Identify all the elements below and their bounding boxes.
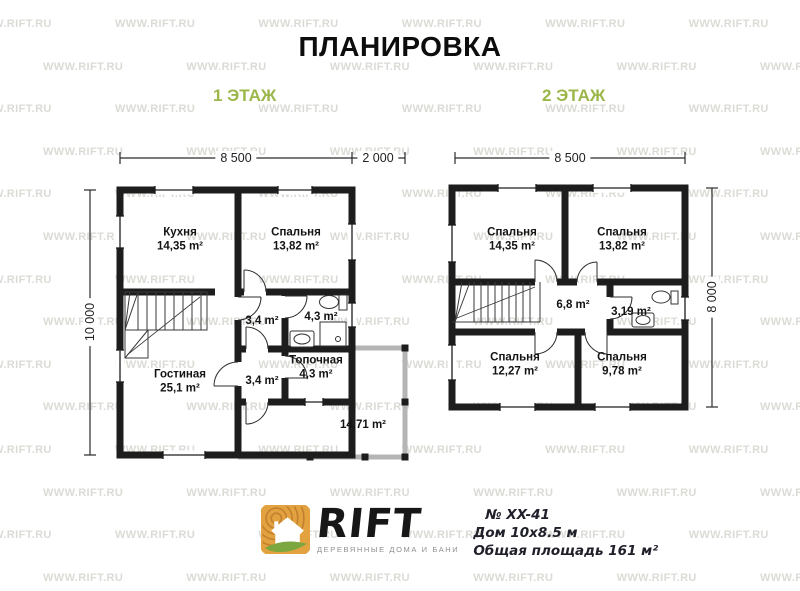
- watermark-text: WWW.RIFT.RU: [330, 572, 410, 584]
- watermark-text: WWW.RIFT.RU: [473, 572, 553, 584]
- stairs-icon: [125, 292, 207, 358]
- footer: RIFT ДЕРЕВЯННЫЕ ДОМА И БАНИ № XX-41 Дом …: [261, 505, 658, 560]
- watermark-text: WWW.RIFT.RU: [545, 18, 625, 30]
- room-label-hall-lower: 3,4 m²: [245, 374, 278, 388]
- watermark-text: WWW.RIFT.RU: [115, 103, 195, 115]
- room-label-bedroom-f1: Спальня13,82 m²: [271, 226, 321, 255]
- watermark-text: WWW.RIFT.RU: [115, 18, 195, 30]
- room-label-hall-f2: 6,8 m²: [556, 298, 589, 312]
- room-label-boiler: Топочная4,3 m²: [289, 354, 343, 383]
- floor1-dim-height: 10 000: [83, 298, 97, 346]
- watermark-text: WWW.RIFT.RU: [760, 316, 800, 328]
- watermark-text: WWW.RIFT.RU: [760, 146, 800, 158]
- floor2-dim-width: 8 500: [549, 151, 590, 165]
- room-label-bedroom1: Спальня14,35 m²: [487, 226, 537, 255]
- floor2-label: 2 ЭТАЖ: [542, 86, 605, 106]
- watermark-text: WWW.RIFT.RU: [43, 572, 123, 584]
- room-label-bedroom4: Спальня9,78 m²: [597, 351, 647, 380]
- room-label-kitchen: Кухня14,35 m²: [157, 226, 203, 255]
- watermark-text: WWW.RIFT.RU: [186, 487, 266, 499]
- watermark-text: WWW.RIFT.RU: [689, 18, 769, 30]
- floor2-plan: 8 500 8 000 Спальня14,35 m² Спальня13,82…: [440, 145, 752, 470]
- rift-logo-icon: [261, 505, 310, 554]
- floor1-plan: 8 500 2 000 10 000 Кухня14,35 m² Спальня…: [80, 145, 415, 470]
- watermark-text: WWW.RIFT.RU: [0, 18, 52, 30]
- project-info: № XX-41 Дом 10х8.5 м Общая площадь 161 м…: [473, 505, 658, 560]
- room-label-living: Гостиная25,1 m²: [154, 368, 206, 397]
- watermark-text: WWW.RIFT.RU: [258, 18, 338, 30]
- watermark-text: WWW.RIFT.RU: [760, 231, 800, 243]
- watermark-text: WWW.RIFT.RU: [689, 103, 769, 115]
- project-number: № XX-41: [473, 506, 658, 524]
- watermark-text: WWW.RIFT.RU: [0, 188, 52, 200]
- watermark-text: WWW.RIFT.RU: [617, 487, 697, 499]
- stairs-icon-f2: [452, 282, 540, 322]
- watermark-text: WWW.RIFT.RU: [0, 444, 52, 456]
- watermark-text: WWW.RIFT.RU: [0, 359, 52, 371]
- watermark-text: WWW.RIFT.RU: [473, 487, 553, 499]
- watermark-text: WWW.RIFT.RU: [617, 572, 697, 584]
- room-label-bedroom2: Спальня13,82 m²: [597, 226, 647, 255]
- room-label-terrace: 14,71 m²: [340, 418, 386, 432]
- room-label-hall-upper: 3,4 m²: [245, 314, 278, 328]
- watermark-text: WWW.RIFT.RU: [186, 572, 266, 584]
- floor2-dim-height: 8 000: [705, 276, 719, 317]
- total-area: Общая площадь 161 м²: [473, 542, 658, 560]
- watermark-text: WWW.RIFT.RU: [43, 487, 123, 499]
- floor1-dim-width-main: 8 500: [215, 151, 256, 165]
- watermark-text: WWW.RIFT.RU: [760, 572, 800, 584]
- page-title: ПЛАНИРОВКА: [0, 31, 800, 63]
- floor1-dim-width-terrace: 2 000: [357, 151, 398, 165]
- watermark-text: WWW.RIFT.RU: [0, 529, 52, 541]
- watermark-text: WWW.RIFT.RU: [402, 103, 482, 115]
- floor1-dimension-lines: [84, 152, 405, 455]
- watermark-text: WWW.RIFT.RU: [115, 529, 195, 541]
- house-size: Дом 10х8.5 м: [473, 524, 658, 542]
- floorplan-page: WWW.RIFT.RUWWW.RIFT.RUWWW.RIFT.RUWWW.RIF…: [0, 0, 800, 591]
- room-label-bedroom3: Спальня12,27 m²: [490, 351, 540, 380]
- watermark-text: WWW.RIFT.RU: [0, 274, 52, 286]
- watermark-text: WWW.RIFT.RU: [330, 487, 410, 499]
- watermark-text: WWW.RIFT.RU: [760, 487, 800, 499]
- room-label-bathroom-f2: 3,19 m²: [611, 305, 651, 319]
- watermark-text: WWW.RIFT.RU: [689, 529, 769, 541]
- room-label-bathroom-f1: 4,3 m²: [304, 310, 337, 324]
- watermark-text: WWW.RIFT.RU: [0, 103, 52, 115]
- watermark-text: WWW.RIFT.RU: [402, 18, 482, 30]
- floor1-label: 1 ЭТАЖ: [213, 86, 276, 106]
- watermark-text: WWW.RIFT.RU: [760, 401, 800, 413]
- brand-name: RIFT: [315, 505, 461, 543]
